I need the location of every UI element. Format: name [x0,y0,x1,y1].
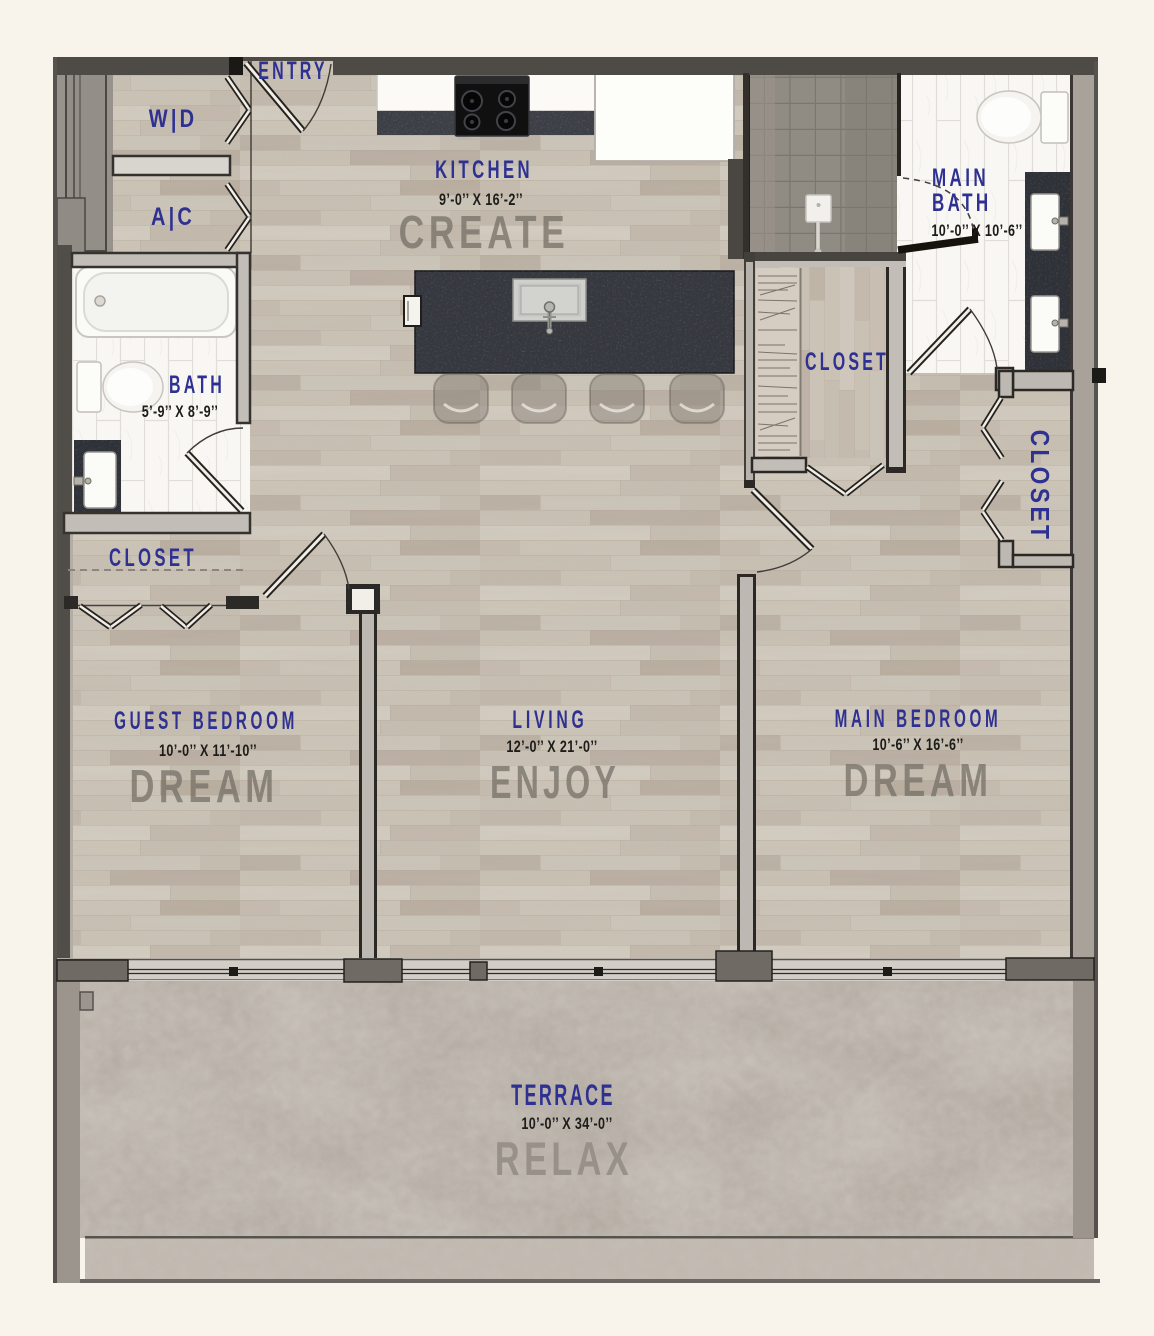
svg-text:CLOSET: CLOSET [109,544,197,572]
svg-text:MAIN: MAIN [932,164,989,192]
svg-text:10’-6’’ X 16’-6’’: 10’-6’’ X 16’-6’’ [872,735,963,754]
svg-text:KITCHEN: KITCHEN [435,156,533,184]
svg-text:CREATE: CREATE [399,207,570,259]
svg-text:W|D: W|D [149,105,197,133]
svg-text:MAIN BEDROOM: MAIN BEDROOM [835,705,1002,733]
svg-text:GUEST BEDROOM: GUEST BEDROOM [114,707,298,735]
svg-text:LIVING: LIVING [512,706,587,734]
svg-text:CLOSET: CLOSET [1025,430,1054,543]
svg-text:ENTRY: ENTRY [258,58,328,85]
svg-text:10’-0’’ X 10’-6’’: 10’-0’’ X 10’-6’’ [931,221,1022,240]
svg-text:5’-9’’ X 8’-9’’: 5’-9’’ X 8’-9’’ [142,402,219,421]
svg-text:DREAM: DREAM [130,760,279,812]
svg-text:A|C: A|C [151,203,195,231]
svg-text:BATH: BATH [169,372,225,399]
svg-text:12’-0’’ X 21’-0’’: 12’-0’’ X 21’-0’’ [506,737,597,756]
svg-text:10’-0’’ X 34’-0’’: 10’-0’’ X 34’-0’’ [521,1114,612,1133]
svg-text:10’-0’’ X 11’-10’’: 10’-0’’ X 11’-10’’ [159,741,257,760]
svg-text:RELAX: RELAX [495,1133,633,1186]
svg-text:BATH: BATH [932,189,992,217]
svg-text:ENJOY: ENJOY [490,757,620,808]
svg-text:DREAM: DREAM [844,754,993,806]
svg-text:TERRACE: TERRACE [511,1080,615,1113]
svg-text:CLOSET: CLOSET [805,349,889,376]
